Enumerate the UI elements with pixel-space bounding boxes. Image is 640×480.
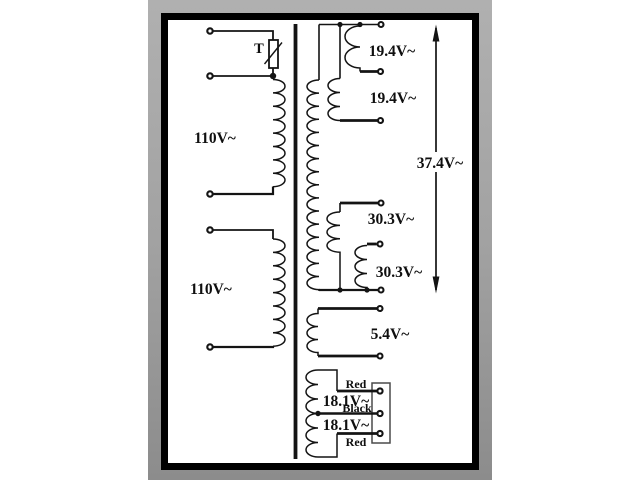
terminal xyxy=(379,201,384,206)
primary-wire-w2-bottom xyxy=(212,346,273,347)
junction-dot xyxy=(364,287,369,292)
secondary-18-bottom-label: 18.1V~ xyxy=(323,417,369,434)
lead-black-label: Black xyxy=(342,401,372,415)
secondary-19-bottom-label: 19.4V~ xyxy=(370,90,416,107)
terminal xyxy=(379,288,384,293)
connector-terminal xyxy=(377,411,382,416)
connector-terminal xyxy=(377,388,382,393)
terminal xyxy=(378,118,383,123)
terminal xyxy=(207,191,212,196)
terminal xyxy=(379,22,384,27)
terminal xyxy=(378,306,383,311)
center-tap-dot xyxy=(315,411,320,416)
thermal-fuse-label: T xyxy=(254,41,264,57)
diagram-frame xyxy=(165,17,476,467)
secondary-19-top-label: 19.4V~ xyxy=(369,43,415,60)
terminal xyxy=(207,28,212,33)
lead-red-top-label: Red xyxy=(346,377,367,391)
terminal xyxy=(207,227,212,232)
terminal xyxy=(378,69,383,74)
secondary-30-bottom-label: 30.3V~ xyxy=(376,264,422,281)
secondary-total-label: 37.4V~ xyxy=(417,155,463,172)
junction-dot xyxy=(357,22,362,27)
secondary-5-label: 5.4V~ xyxy=(371,326,410,343)
transformer-schematic: 110V~ 110V~ T 19.4V~ 19.4V~ 37.4V~ 30.3V… xyxy=(0,0,640,480)
terminal xyxy=(378,354,383,359)
junction-dot xyxy=(337,22,342,27)
junction-dot xyxy=(337,287,342,292)
secondary-30-top-label: 30.3V~ xyxy=(368,211,414,228)
terminal xyxy=(207,344,212,349)
connector-terminal xyxy=(377,431,382,436)
junction-dot xyxy=(270,73,276,79)
primary-voltage-label-2: 110V~ xyxy=(190,281,232,298)
terminal xyxy=(378,242,383,247)
primary-voltage-label-1: 110V~ xyxy=(194,130,236,147)
terminal xyxy=(207,73,212,78)
scanned-schematic-photo: 110V~ 110V~ T 19.4V~ 19.4V~ 37.4V~ 30.3V… xyxy=(0,0,640,480)
lead-red-bottom-label: Red xyxy=(346,435,367,449)
